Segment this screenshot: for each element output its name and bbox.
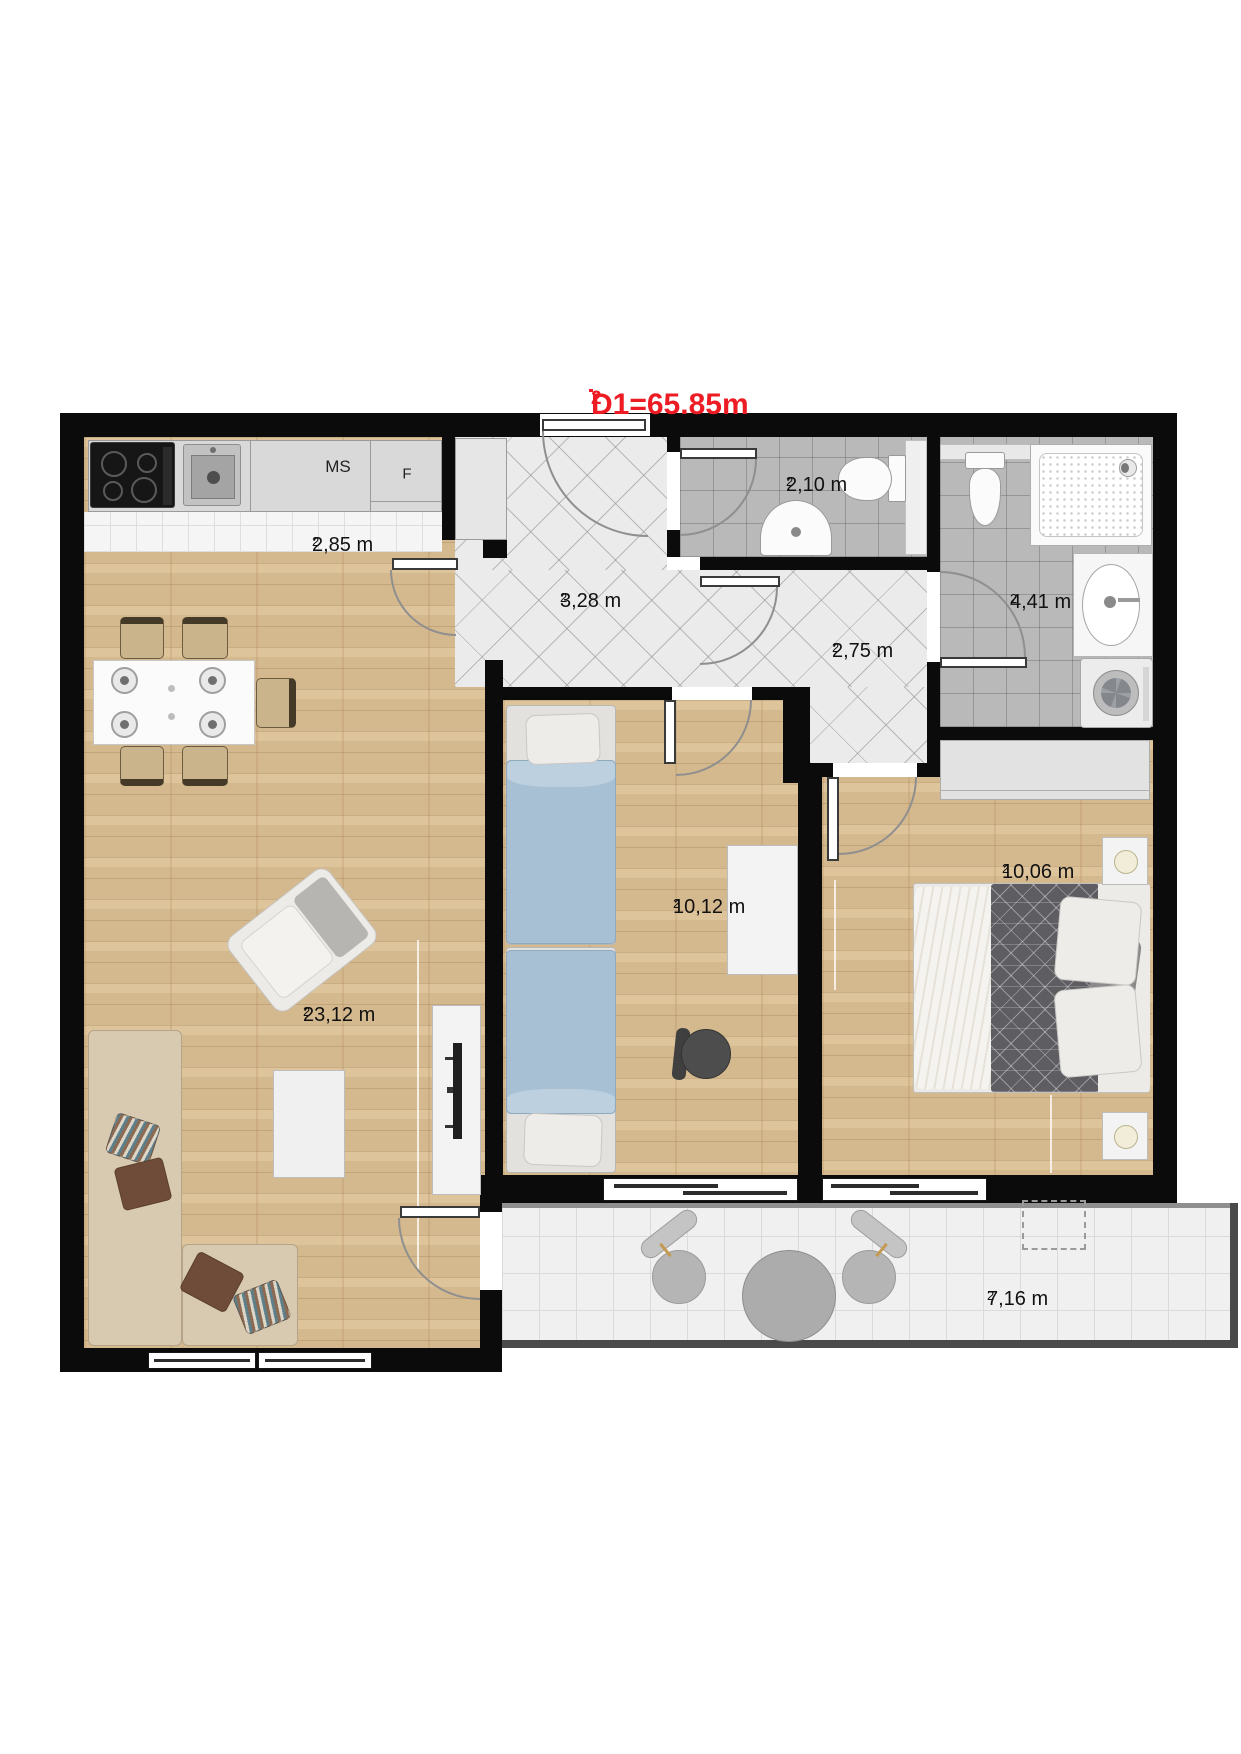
wc-door — [680, 448, 757, 459]
hall-cabinet — [455, 438, 507, 540]
counter-divider — [370, 501, 442, 502]
balcony-table — [742, 1250, 836, 1342]
wall — [700, 557, 927, 570]
wall — [485, 660, 503, 1175]
bathroom-door — [940, 657, 1027, 668]
dining-chair — [182, 617, 228, 659]
balcony-door-opening — [480, 1212, 502, 1290]
ac-unit-outline — [1022, 1200, 1086, 1250]
office-chair — [681, 1029, 731, 1079]
dining-chair — [120, 746, 164, 786]
wc-door-opening — [667, 452, 680, 530]
kitchen-sink — [183, 444, 241, 506]
window — [148, 1352, 256, 1369]
balcony-threshold — [502, 1203, 1238, 1208]
nightstand — [1102, 837, 1148, 885]
bedroom-1-door — [664, 700, 676, 764]
bedroom-2-door-opening — [833, 763, 917, 777]
bathroom-vanity — [1073, 553, 1153, 657]
plan-title: D1=65.85m2 — [589, 388, 593, 392]
bed-duvet — [506, 950, 616, 1114]
wall — [60, 437, 84, 1372]
counter-divider — [250, 441, 251, 511]
wall — [493, 687, 673, 700]
floor-seam — [1050, 1095, 1052, 1173]
cooktop — [90, 442, 175, 508]
washing-machine — [1080, 658, 1153, 728]
window — [258, 1352, 372, 1369]
dining-table — [93, 660, 255, 745]
balcony-window — [822, 1178, 987, 1201]
wall — [667, 530, 680, 557]
balcony-railing — [502, 1340, 1238, 1348]
wall — [927, 662, 940, 777]
corridor-door — [700, 576, 780, 587]
nightstand — [1102, 1112, 1148, 1160]
wardrobe — [940, 740, 1150, 800]
living-hall-door — [392, 558, 458, 570]
corridor-extension-floor — [810, 687, 927, 763]
wall — [1153, 437, 1177, 1203]
wall — [927, 437, 940, 572]
balcony-door — [400, 1206, 480, 1218]
toilet-tank — [965, 452, 1005, 469]
fridge-label: F — [402, 466, 411, 483]
bedroom-2-door — [827, 777, 839, 861]
wall — [783, 687, 810, 783]
wall — [810, 763, 833, 777]
double-bed — [913, 883, 1150, 1093]
wall — [798, 777, 822, 1175]
floor-plan-page: D1=65.85m2 — [0, 0, 1241, 1754]
balcony-railing — [1230, 1203, 1238, 1348]
kitchen-tile-floor — [84, 512, 442, 552]
dining-chair — [256, 678, 296, 728]
bed-duvet — [506, 760, 616, 944]
coffee-table — [273, 1070, 345, 1178]
wall — [667, 437, 680, 452]
wall — [927, 727, 1153, 740]
wall — [752, 687, 783, 700]
balcony-chair — [842, 1250, 896, 1304]
wall — [483, 537, 507, 558]
wc-shelf — [905, 440, 927, 555]
bed-pillow — [525, 713, 601, 766]
bathroom-door-opening — [927, 572, 940, 662]
bed-pillow — [523, 1113, 603, 1168]
tv-stand — [432, 1005, 481, 1195]
bedroom-1-door-opening — [672, 687, 752, 700]
washing-machine-label: MS — [325, 457, 351, 477]
balcony-window — [603, 1178, 798, 1201]
wall — [442, 437, 455, 540]
shower — [1030, 444, 1152, 546]
wall — [917, 763, 927, 777]
floor-seam — [834, 880, 836, 990]
balcony-chair — [652, 1250, 706, 1304]
corridor-floor — [455, 570, 927, 687]
dining-chair — [120, 617, 164, 659]
dining-chair — [182, 746, 228, 786]
